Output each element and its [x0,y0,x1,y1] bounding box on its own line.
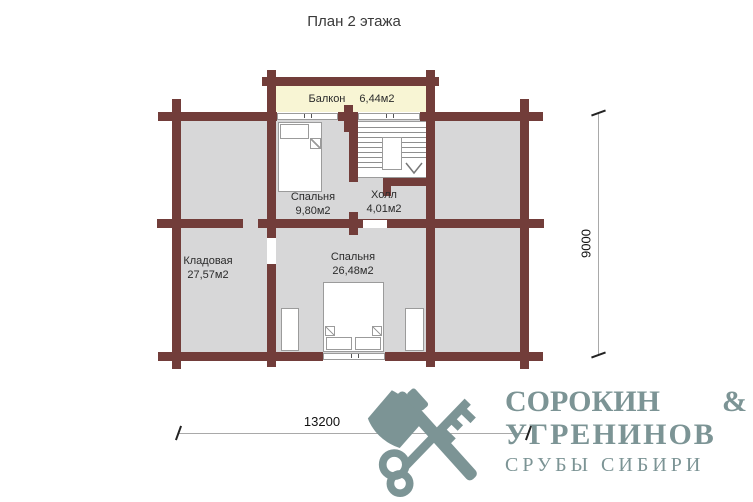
room-area: 27,57м2 [167,268,249,282]
wardrobe [405,308,424,351]
page-title: План 2 этажа [254,13,454,30]
stair-tread [358,152,382,153]
wall-interior-right [426,112,435,361]
wall-interior-left [267,112,276,361]
logo-ampersand: & [722,386,747,418]
wardrobe [281,308,299,351]
room-area: 26,48м2 [312,264,394,278]
log-end [158,352,172,361]
window-tick [304,114,312,118]
wall-top-left [172,112,277,121]
label-balcony: Балкон 6,44м2 [279,92,424,106]
wall-right [520,112,529,361]
door-storage-bedroom [267,238,276,264]
window-tick [351,354,359,358]
stair-tread [358,132,426,133]
label-storage: Кладовая 27,57м2 [167,254,249,283]
logo-name-1: СОРОКИН [505,386,660,418]
log-end [520,99,529,112]
dim-height-value: 9000 [579,214,594,274]
bed-pillow [355,337,381,350]
wall-top-right [420,112,529,121]
window-tick [386,114,394,118]
log-end [267,361,276,367]
wall-bottom-right [385,352,529,361]
blanket-fold [372,326,382,336]
room-name: Кладовая [167,254,249,268]
log-end [426,361,435,367]
logo-line-2: УГРЕНИНОВ [505,418,747,451]
wall-mid-a [172,219,243,228]
room-name: Холл [352,188,416,202]
axe-key-icon [332,372,528,502]
blanket-fold [325,326,335,336]
room-name: Балкон [309,92,346,106]
stair-tread [358,157,382,158]
stair-tread [402,147,426,148]
log-end [157,219,172,228]
logo-text-block: СОРОКИН & УГРЕНИНОВ СРУБЫ СИБИРИ [505,386,747,477]
room-area: 4,01м2 [352,202,416,216]
log-end [172,361,181,369]
log-end [529,219,544,228]
wall-left [172,112,181,361]
room-area: 6,44м2 [359,92,394,106]
bed-pillow [326,337,352,350]
label-bedroom-large: Спальня 26,48м2 [312,250,394,279]
balcony-wall-left [267,70,276,112]
label-bedroom-small: Спальня 9,80м2 [272,190,354,219]
bed-pillow [280,124,309,139]
log-end [520,361,529,369]
log-end [529,112,543,121]
wall-stair-left [349,121,358,182]
stair-down-arrow-icon [404,161,424,176]
stair-tread [358,167,382,168]
stair-tread [358,162,382,163]
room-name: Спальня [272,190,354,204]
log-end [172,99,181,112]
room-area: 9,80м2 [272,204,354,218]
door-hall-bedroom [363,220,387,228]
log-end [529,352,543,361]
wall-top-pier [338,112,358,121]
label-hall: Холл 4,01м2 [352,188,416,217]
stair-tread [358,127,426,128]
stair-well [382,137,402,170]
wall-hall-stairs [383,178,427,186]
logo-line-1: СОРОКИН & [505,386,747,418]
dim-line-vertical [598,113,599,355]
blanket-fold [310,138,321,149]
balcony-wall-top [262,77,439,86]
floor-plan-page: План 2 этажа [0,0,753,502]
balcony-wall-right [426,70,435,112]
logo-tagline: СРУБЫ СИБИРИ [505,454,747,477]
stair-tread [402,157,426,158]
log-end [158,112,172,121]
stair-tread [358,147,382,148]
room-name: Спальня [312,250,394,264]
stair-tread [402,152,426,153]
wall-bottom-left [172,352,323,361]
wall-mid-b [258,219,529,228]
